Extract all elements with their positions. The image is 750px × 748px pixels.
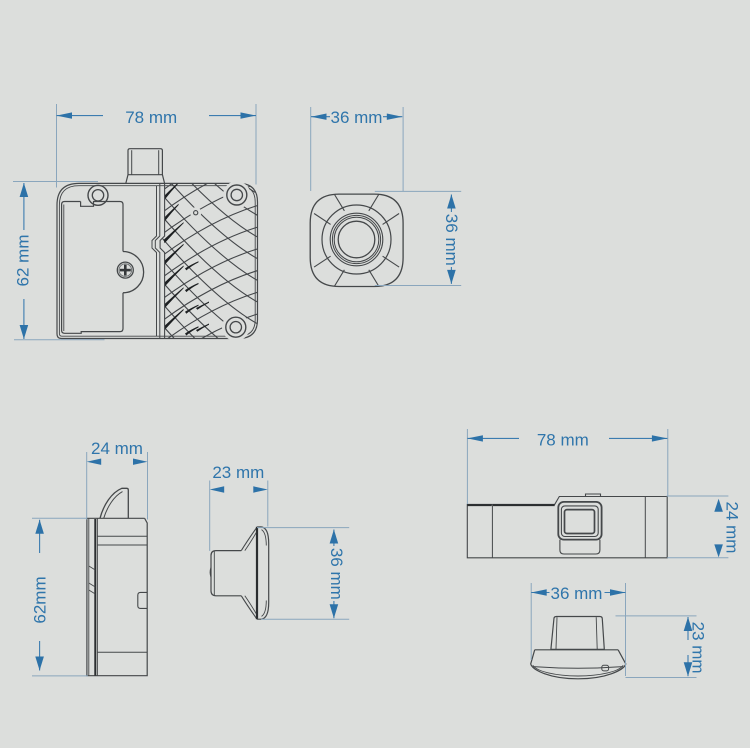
svg-text:78 mm: 78 mm (125, 108, 177, 127)
svg-text:36 mm: 36 mm (551, 584, 603, 603)
svg-text:24 mm: 24 mm (723, 502, 742, 554)
svg-text:78 mm: 78 mm (537, 430, 589, 449)
svg-text:24 mm: 24 mm (91, 439, 143, 458)
svg-text:36 mm: 36 mm (331, 108, 383, 127)
svg-text:62 mm: 62 mm (13, 235, 32, 287)
svg-text:62mm: 62mm (31, 576, 50, 623)
svg-text:36 mm: 36 mm (442, 214, 461, 266)
svg-text:23 mm: 23 mm (212, 463, 264, 482)
svg-text:23 mm: 23 mm (689, 622, 708, 674)
svg-text:36 mm: 36 mm (327, 548, 346, 600)
